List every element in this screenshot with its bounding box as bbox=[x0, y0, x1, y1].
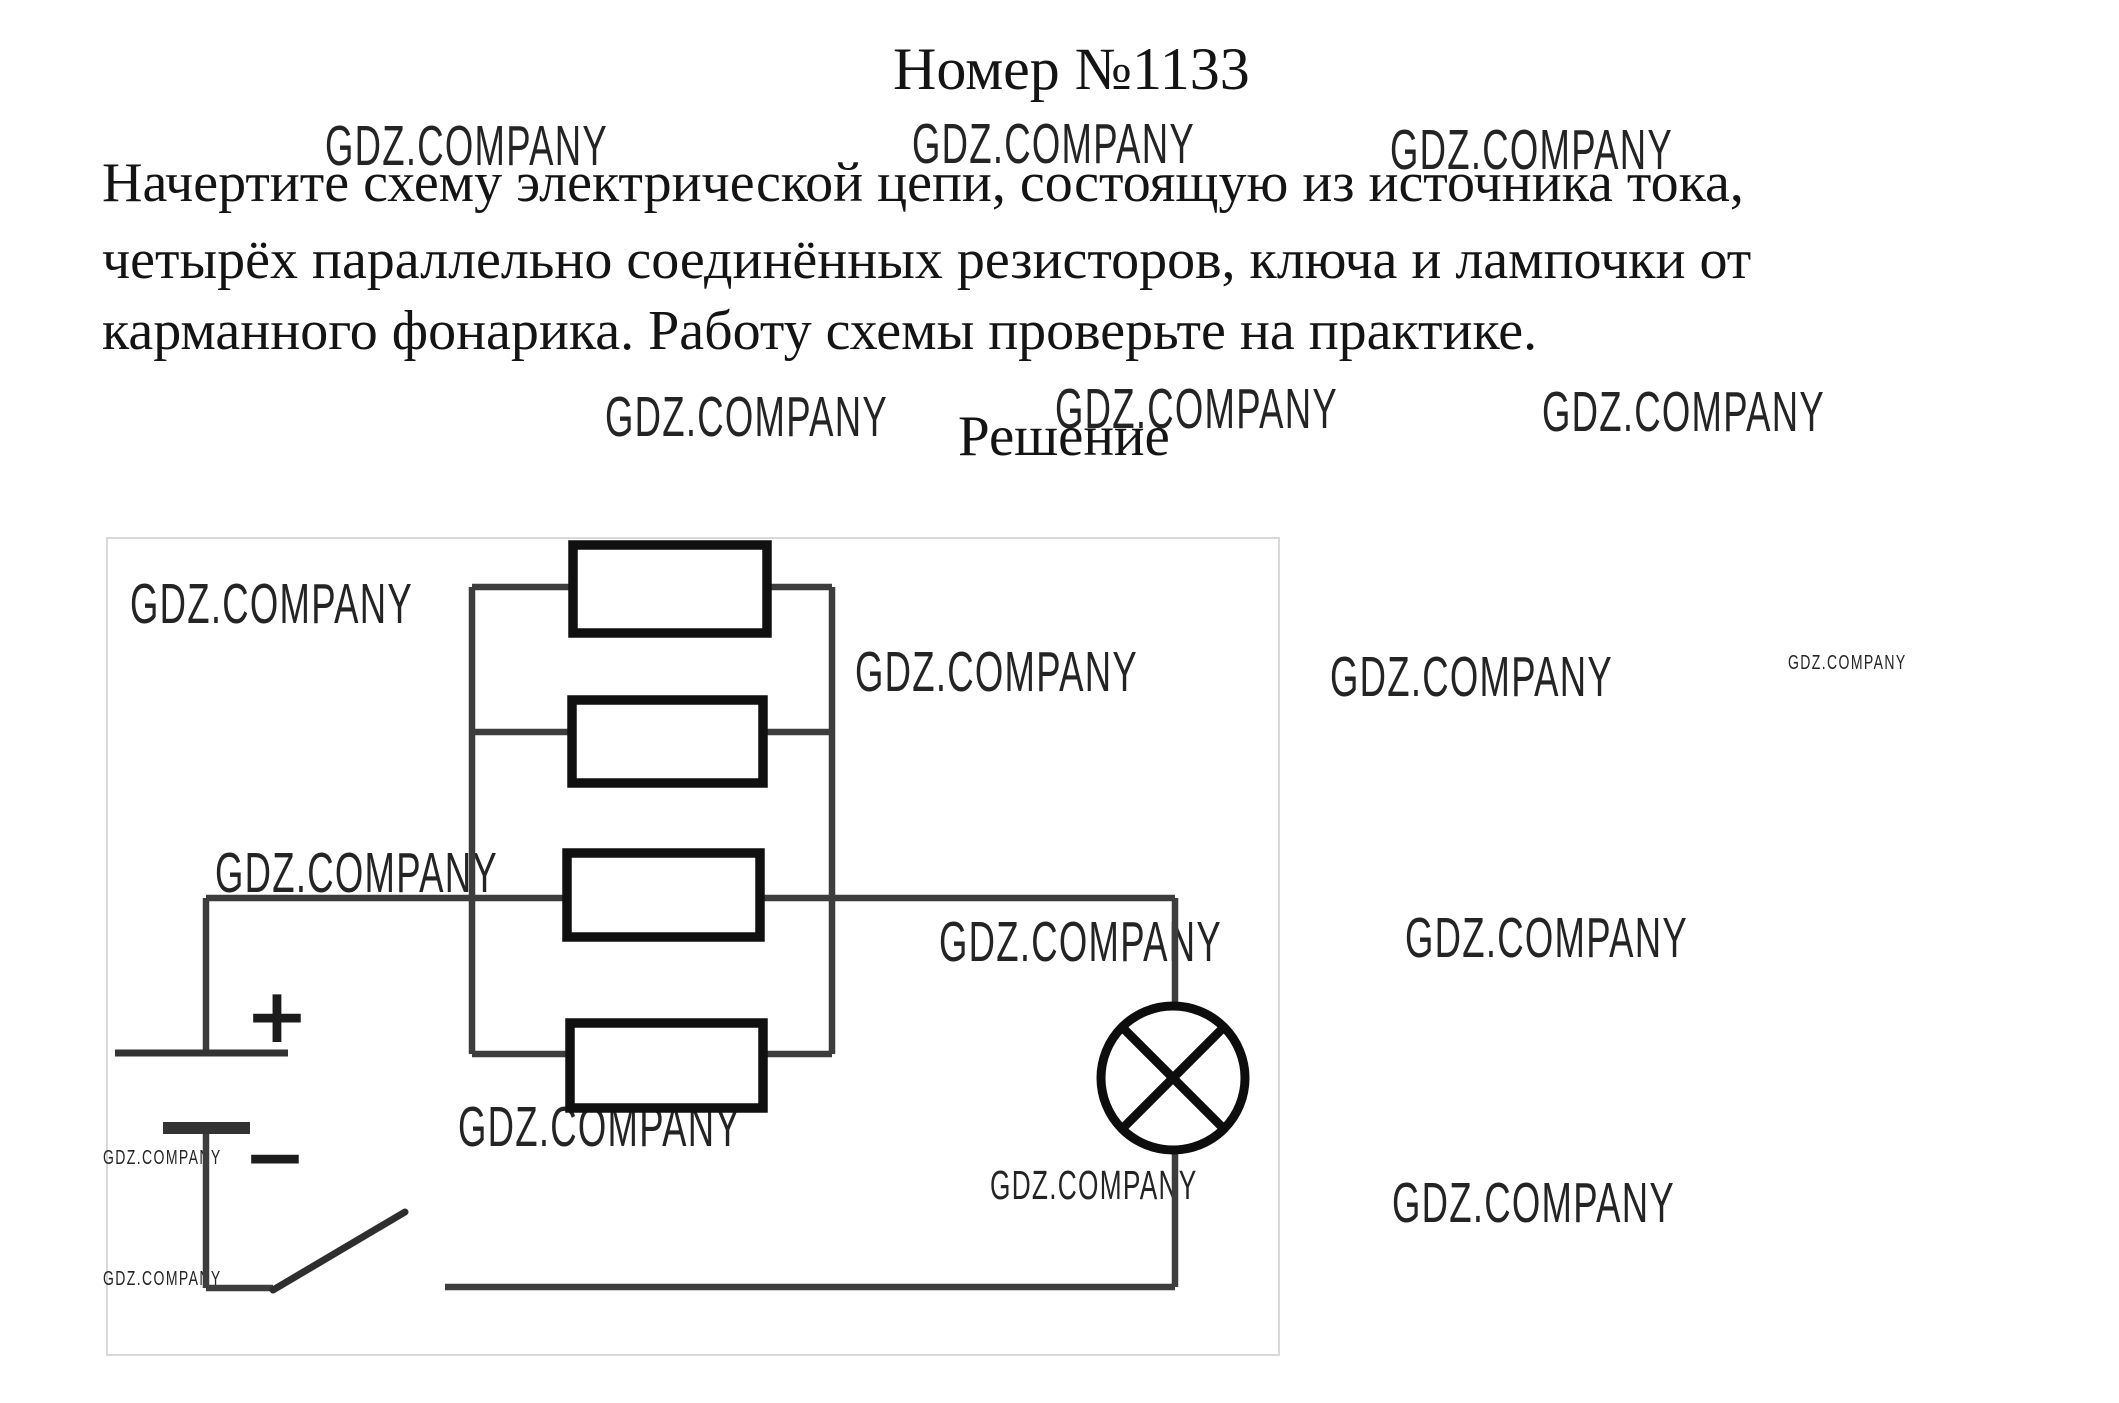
circuit-diagram bbox=[0, 0, 2119, 1403]
resistor-1-icon bbox=[573, 545, 767, 633]
battery-minus-label: − bbox=[238, 1120, 312, 1194]
resistor-bank bbox=[567, 545, 767, 1108]
battery-plus-label: + bbox=[240, 979, 314, 1053]
resistor-3-icon bbox=[567, 853, 760, 937]
resistor-2-icon bbox=[572, 700, 763, 783]
switch-icon bbox=[273, 1212, 405, 1290]
solution-page: Номер №1133 Начертите схему электрическо… bbox=[0, 0, 2119, 1403]
lamp-icon bbox=[1101, 1006, 1245, 1150]
resistor-4-icon bbox=[570, 1023, 763, 1108]
